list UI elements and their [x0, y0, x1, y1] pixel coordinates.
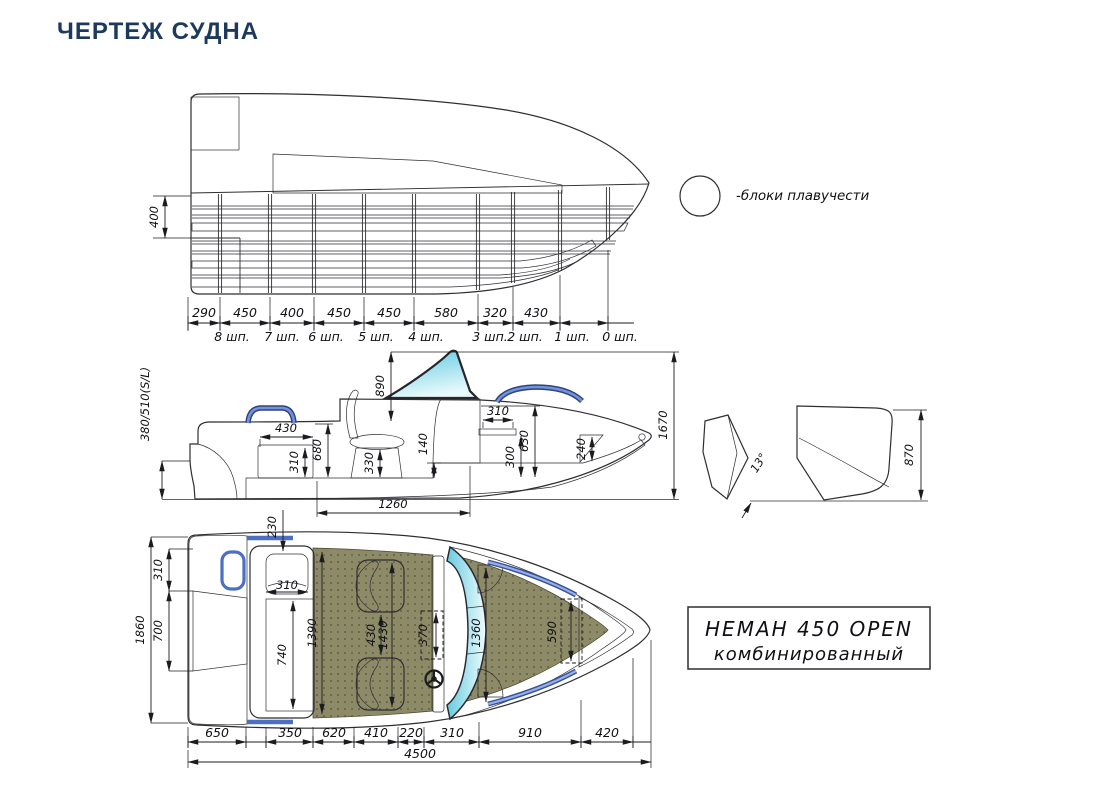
dim-console-width: 370: [416, 624, 430, 646]
ship-drawing: 400 290 450 400 450 450: [0, 0, 1111, 788]
dim-transom-height: 380/510(S/L): [138, 367, 152, 441]
svg-text:910: 910: [518, 725, 542, 740]
dim-cockpit-depth: 680: [310, 439, 324, 461]
svg-text:6 шп.: 6 шп.: [308, 329, 344, 344]
model-variant: комбинированный: [714, 644, 904, 665]
drawing-page: ЧЕРТЕЖ СУДНА: [0, 0, 1111, 788]
svg-text:220: 220: [399, 725, 423, 740]
svg-text:650: 650: [205, 725, 229, 740]
dim-structural-height: 400: [147, 206, 161, 228]
svg-text:0 шп.: 0 шп.: [602, 329, 638, 344]
svg-text:450: 450: [377, 305, 401, 320]
buoyancy-block-wedge: [273, 154, 562, 193]
console-profile: [433, 399, 480, 463]
svg-text:420: 420: [595, 725, 619, 740]
bow-eye-ring: [639, 434, 645, 440]
console-shelf: [479, 429, 516, 435]
svg-text:4 шп.: 4 шп.: [408, 329, 444, 344]
dim-transom-view-height: 870: [902, 444, 916, 466]
buoyancy-hatch-icon: [680, 176, 720, 216]
dim-bow-seat-height: 240: [574, 438, 588, 460]
dim-shelf-width: 310: [487, 404, 509, 418]
dim-headrest-depth: 230: [265, 516, 279, 538]
svg-text:580: 580: [434, 305, 458, 320]
stringers: [192, 206, 634, 287]
platform-handle: [222, 552, 244, 589]
svg-text:410: 410: [364, 725, 388, 740]
dim-platform-width: 310: [151, 559, 165, 581]
svg-text:620: 620: [322, 725, 346, 740]
dim-cockpit-width: 1390: [305, 618, 319, 647]
dim-overall-length: 4500: [404, 746, 436, 761]
svg-text:8 шп.: 8 шп.: [214, 329, 250, 344]
dim-bench-width: 740: [275, 644, 289, 666]
dim-cushion-width: 310: [276, 578, 298, 592]
svg-text:350: 350: [278, 725, 302, 740]
dim-deadrise-angle: 13°: [747, 450, 770, 475]
svg-text:7 шп.: 7 шп.: [264, 329, 300, 344]
console-plan: [432, 556, 444, 712]
dim-seat-height: 310: [287, 451, 301, 473]
dim-pedestal-height: 330: [362, 452, 376, 474]
buoyancy-block-stern: [191, 97, 239, 150]
frames: [218, 187, 609, 293]
pedestal-seat-profile: [351, 448, 402, 478]
dim-overall-height: 1670: [656, 410, 670, 439]
stringer-band-upper: [192, 223, 628, 231]
svg-text:320: 320: [483, 305, 507, 320]
engine-well-lines: [192, 238, 240, 293]
transom-view: 13° 870: [703, 406, 928, 518]
transom-port-piece: [703, 415, 748, 499]
profile-side-view: 380/510(S/L) 890 430 310 680 330 140 310…: [138, 351, 679, 517]
svg-text:1 шп.: 1 шп.: [554, 329, 590, 344]
dim-shelf-height: 300: [503, 446, 517, 468]
engine-well: [193, 591, 247, 671]
dim-bow-seat-width: 590: [545, 621, 559, 643]
svg-text:430: 430: [524, 305, 548, 320]
structural-side-view: 400 290 450 400 450 450: [147, 94, 649, 344]
svg-text:450: 450: [327, 305, 351, 320]
dim-floor-step: 140: [416, 433, 430, 455]
dim-well-width: 700: [151, 620, 165, 642]
legend-label: -блоки плавучести: [736, 188, 870, 204]
sheer-line: [191, 184, 649, 193]
transom-chine-line: [797, 406, 889, 487]
hull-structural-outline: [191, 94, 649, 294]
seat-cushion-profile: [350, 435, 404, 450]
svg-text:450: 450: [233, 305, 257, 320]
station-segment-values: 290 450 400 450 450 580 320 430: [192, 305, 548, 320]
dim-windshield-height: 890: [373, 375, 387, 397]
svg-text:2 шп.: 2 шп.: [507, 329, 543, 344]
svg-text:290: 290: [192, 305, 216, 320]
svg-text:310: 310: [440, 725, 464, 740]
transom-port-facet: [727, 415, 737, 499]
model-label-box: НЕМАН 450 OPEN комбинированный: [688, 607, 930, 669]
model-name: НЕМАН 450 OPEN: [705, 617, 913, 641]
buoyancy-legend: -блоки плавучести: [680, 176, 870, 216]
dim-cockpit-length: 1260: [378, 497, 407, 511]
bench-seat-inner: [266, 599, 314, 711]
dim-beam: 1860: [133, 615, 147, 644]
plan-top-view: 1860 310 700 230 310 740 1390 430 1430 3…: [133, 510, 651, 768]
dim-bow-cockpit-width: 1360: [469, 618, 483, 647]
svg-text:400: 400: [280, 305, 304, 320]
station-labels: 8 шп. 7 шп. 6 шп. 5 шп. 4 шп. 3 шп. 2 шп…: [214, 329, 638, 344]
bow-rail-outline: [497, 387, 582, 402]
deadrise-leader: [742, 503, 751, 518]
svg-text:5 шп.: 5 шп.: [358, 329, 394, 344]
motor-well-line: [198, 444, 237, 499]
dim-seat-span: 1430: [376, 620, 390, 649]
transom-body: [797, 406, 892, 500]
dim-console-height: 630: [517, 430, 531, 452]
svg-text:3 шп.: 3 шп.: [472, 329, 508, 344]
windshield-profile: [386, 351, 477, 398]
seat-backrest-profile: [346, 390, 358, 438]
swim-platform: [189, 535, 247, 725]
dim-seat-width: 430: [275, 421, 297, 435]
